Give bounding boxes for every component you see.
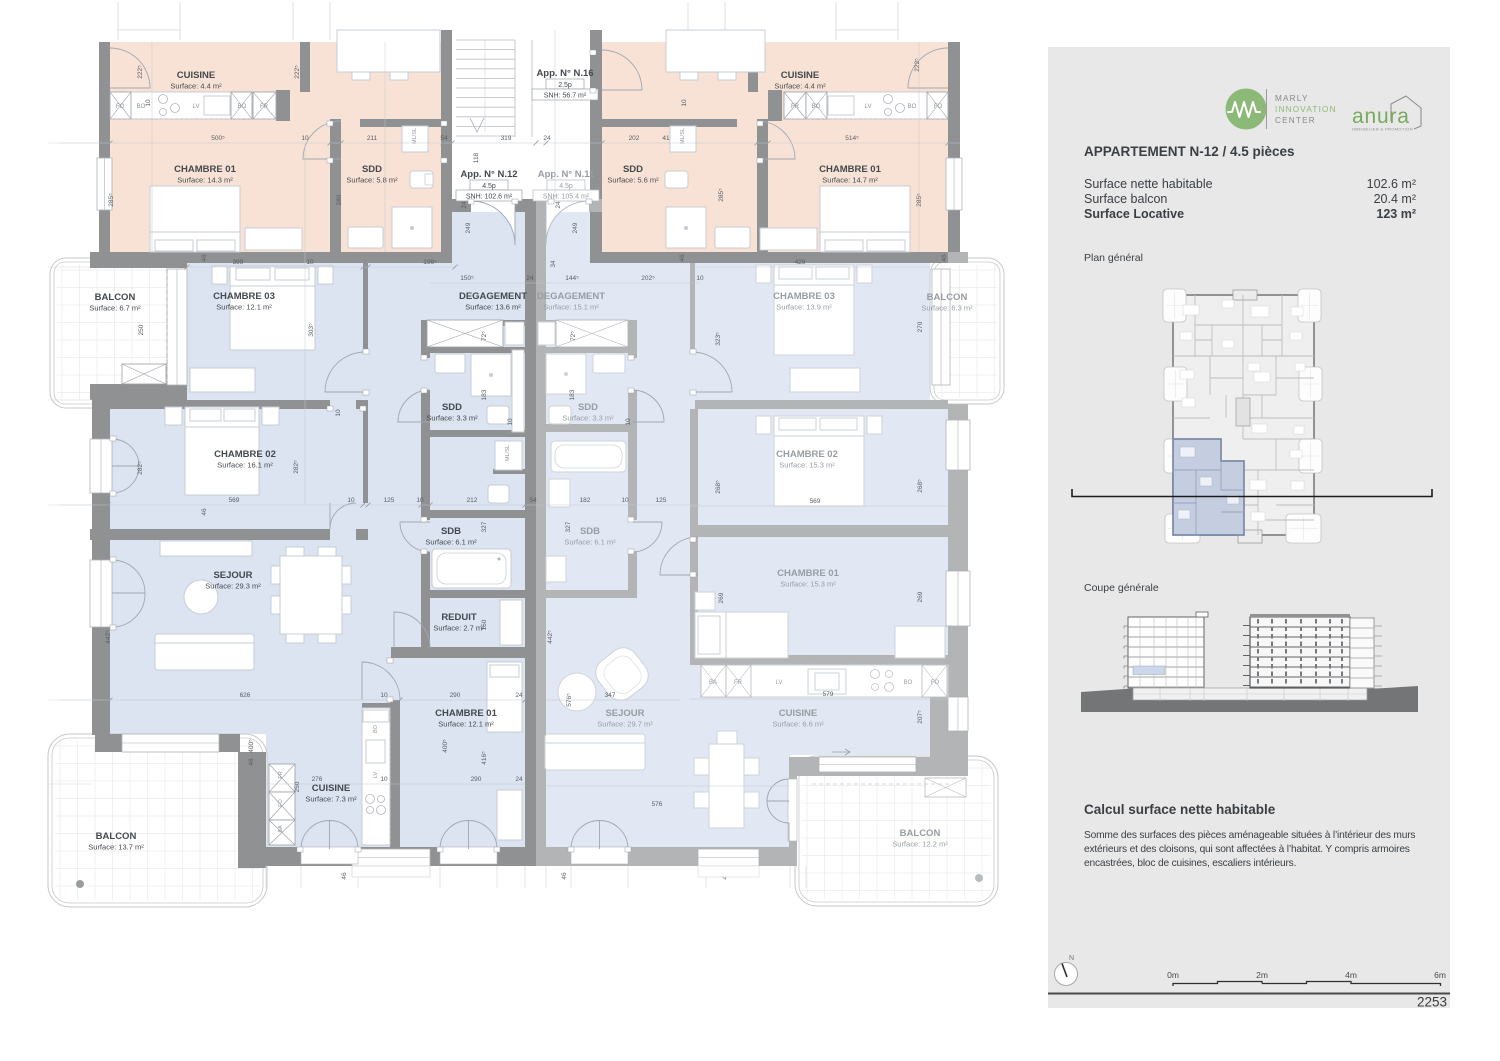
svg-text:400⁵: 400⁵ bbox=[248, 739, 255, 753]
svg-text:46: 46 bbox=[341, 872, 348, 880]
svg-text:Surface: 29.3 m²: Surface: 29.3 m² bbox=[205, 582, 261, 591]
svg-text:102.6 m²: 102.6 m² bbox=[1367, 177, 1416, 191]
svg-text:222⁵: 222⁵ bbox=[137, 65, 144, 79]
svg-text:207⁵: 207⁵ bbox=[917, 710, 924, 724]
svg-text:10: 10 bbox=[380, 776, 388, 783]
svg-text:Surface: 6.3 m²: Surface: 6.3 m² bbox=[921, 304, 973, 313]
svg-text:DEGAGEMENT: DEGAGEMENT bbox=[537, 291, 605, 302]
svg-text:Coupe générale: Coupe générale bbox=[1084, 582, 1159, 594]
svg-text:125: 125 bbox=[384, 497, 395, 504]
svg-text:Surface: 2.7 m²: Surface: 2.7 m² bbox=[433, 624, 485, 633]
svg-text:Surface: 6.1 m²: Surface: 6.1 m² bbox=[564, 538, 616, 547]
svg-text:CHAMBRE 01: CHAMBRE 01 bbox=[435, 708, 497, 719]
svg-text:IMMOBILIER & PROMOTION: IMMOBILIER & PROMOTION bbox=[1352, 127, 1413, 132]
svg-text:LV: LV bbox=[776, 680, 783, 686]
svg-text:CHAMBRE 01: CHAMBRE 01 bbox=[174, 164, 236, 175]
svg-text:2m: 2m bbox=[1256, 970, 1268, 980]
svg-text:268⁵: 268⁵ bbox=[917, 479, 924, 493]
svg-text:46: 46 bbox=[679, 254, 686, 262]
svg-text:BO: BO bbox=[238, 104, 247, 110]
svg-text:276: 276 bbox=[312, 776, 323, 783]
svg-text:Surface: 7.3 m²: Surface: 7.3 m² bbox=[305, 795, 357, 804]
svg-text:Surface: 15.1 m²: Surface: 15.1 m² bbox=[543, 303, 599, 312]
svg-text:270: 270 bbox=[917, 321, 924, 332]
svg-text:319: 319 bbox=[501, 135, 512, 142]
svg-text:Surface: 6.7 m²: Surface: 6.7 m² bbox=[89, 304, 141, 313]
svg-text:429: 429 bbox=[795, 259, 806, 266]
svg-text:20.4 m²: 20.4 m² bbox=[1374, 192, 1416, 206]
svg-text:500⁵: 500⁵ bbox=[211, 135, 225, 142]
svg-text:FO: FO bbox=[278, 798, 284, 806]
svg-text:FR: FR bbox=[734, 680, 743, 686]
svg-text:INNOVATION: INNOVATION bbox=[1275, 105, 1337, 114]
svg-text:46: 46 bbox=[248, 758, 255, 766]
svg-text:442⁵: 442⁵ bbox=[547, 630, 554, 644]
svg-text:BALCON: BALCON bbox=[95, 292, 136, 303]
svg-text:Surface: 5.8 m²: Surface: 5.8 m² bbox=[346, 176, 398, 185]
svg-text:LV: LV bbox=[193, 104, 200, 110]
svg-text:CHAMBRE 01: CHAMBRE 01 bbox=[819, 164, 881, 175]
svg-text:CHAMBRE 01: CHAMBRE 01 bbox=[777, 568, 839, 579]
svg-text:212: 212 bbox=[467, 497, 478, 504]
svg-text:Surface: 3.3 m²: Surface: 3.3 m² bbox=[562, 414, 614, 423]
svg-text:10: 10 bbox=[306, 259, 314, 266]
svg-text:CHAMBRE 02: CHAMBRE 02 bbox=[214, 449, 276, 460]
svg-text:Surface: 6.1 m²: Surface: 6.1 m² bbox=[425, 538, 477, 547]
svg-text:182: 182 bbox=[580, 497, 591, 504]
svg-text:10: 10 bbox=[335, 409, 342, 417]
svg-text:SDD: SDD bbox=[623, 164, 643, 175]
svg-text:24: 24 bbox=[515, 776, 523, 783]
svg-text:285⁵: 285⁵ bbox=[916, 193, 923, 207]
svg-text:Plan général: Plan général bbox=[1084, 252, 1143, 264]
svg-text:46: 46 bbox=[561, 872, 568, 880]
svg-text:DEGAGEMENT: DEGAGEMENT bbox=[459, 291, 527, 302]
svg-text:399: 399 bbox=[233, 259, 244, 266]
svg-text:202: 202 bbox=[629, 135, 640, 142]
svg-text:24: 24 bbox=[526, 275, 534, 282]
svg-text:BALCON: BALCON bbox=[900, 828, 941, 839]
svg-text:Surface: 16.1 m²: Surface: 16.1 m² bbox=[217, 461, 273, 470]
svg-text:CENTER: CENTER bbox=[1275, 116, 1316, 125]
svg-text:Surface: 13.7 m²: Surface: 13.7 m² bbox=[88, 843, 144, 852]
svg-text:CHAMBRE 02: CHAMBRE 02 bbox=[776, 449, 838, 460]
svg-text:FO: FO bbox=[116, 104, 125, 110]
svg-text:Surface: 13.6 m²: Surface: 13.6 m² bbox=[465, 303, 521, 312]
svg-text:285⁵: 285⁵ bbox=[718, 188, 725, 202]
svg-text:CHAMBRE 03: CHAMBRE 03 bbox=[213, 291, 275, 302]
svg-text:10: 10 bbox=[301, 135, 309, 142]
svg-text:ML/SL: ML/SL bbox=[680, 128, 686, 144]
svg-text:24: 24 bbox=[543, 135, 551, 142]
svg-text:App. N° N.16: App. N° N.16 bbox=[536, 68, 593, 79]
svg-text:626: 626 bbox=[240, 692, 251, 699]
svg-text:SDB: SDB bbox=[580, 526, 600, 537]
svg-text:4.5p: 4.5p bbox=[559, 183, 573, 190]
svg-text:268⁵: 268⁵ bbox=[715, 480, 722, 494]
svg-text:183: 183 bbox=[481, 389, 488, 400]
svg-text:LV: LV bbox=[373, 772, 379, 779]
svg-text:FR: FR bbox=[278, 771, 284, 778]
svg-text:72⁵: 72⁵ bbox=[481, 331, 488, 341]
svg-text:514⁵: 514⁵ bbox=[845, 135, 859, 142]
svg-text:10: 10 bbox=[625, 418, 632, 426]
svg-text:anura: anura bbox=[1352, 105, 1410, 128]
svg-text:211: 211 bbox=[367, 135, 378, 142]
svg-text:APPARTEMENT N-12 / 4.5 pièces: APPARTEMENT N-12 / 4.5 pièces bbox=[1084, 144, 1295, 159]
svg-text:SDB: SDB bbox=[441, 526, 461, 537]
svg-text:Surface: 4.4 m²: Surface: 4.4 m² bbox=[170, 82, 222, 91]
svg-text:BO: BO bbox=[812, 104, 821, 110]
svg-text:282⁵: 282⁵ bbox=[293, 460, 300, 474]
svg-text:Surface: 15.3 m²: Surface: 15.3 m² bbox=[779, 461, 835, 470]
svg-text:encastrées, bloc de cuisines,: encastrées, bloc de cuisines, escaliers … bbox=[1084, 858, 1296, 869]
svg-text:250: 250 bbox=[294, 781, 301, 792]
svg-text:BO: BO bbox=[904, 680, 913, 686]
svg-text:CUISINE: CUISINE bbox=[781, 70, 820, 81]
svg-text:123 m²: 123 m² bbox=[1376, 207, 1416, 221]
svg-text:LV: LV bbox=[865, 104, 872, 110]
svg-text:Surface: 3.3 m²: Surface: 3.3 m² bbox=[426, 414, 478, 423]
svg-text:72⁵: 72⁵ bbox=[570, 331, 577, 341]
svg-text:125: 125 bbox=[656, 497, 667, 504]
svg-text:Calcul surface nette habitable: Calcul surface nette habitable bbox=[1084, 802, 1276, 817]
svg-text:202⁵: 202⁵ bbox=[641, 275, 655, 282]
svg-text:249: 249 bbox=[572, 222, 579, 233]
svg-text:Surface Locative: Surface Locative bbox=[1084, 207, 1184, 221]
svg-text:10: 10 bbox=[621, 497, 629, 504]
svg-text:Surface: 14.3 m²: Surface: 14.3 m² bbox=[177, 176, 233, 185]
svg-text:App. N° N.11: App. N° N.11 bbox=[538, 169, 595, 180]
svg-text:118: 118 bbox=[473, 152, 480, 163]
svg-text:400⁵: 400⁵ bbox=[442, 739, 449, 753]
svg-text:SDD: SDD bbox=[442, 402, 462, 413]
svg-text:34: 34 bbox=[550, 260, 557, 268]
svg-text:249: 249 bbox=[465, 222, 472, 233]
svg-text:290: 290 bbox=[450, 692, 461, 699]
svg-text:REDUIT: REDUIT bbox=[441, 612, 477, 623]
svg-text:323⁵: 323⁵ bbox=[715, 332, 722, 346]
svg-text:Surface nette habitable: Surface nette habitable bbox=[1084, 177, 1213, 191]
svg-text:Surface: 12.1 m²: Surface: 12.1 m² bbox=[438, 720, 494, 729]
svg-text:10: 10 bbox=[507, 418, 514, 426]
svg-text:MARLY: MARLY bbox=[1275, 94, 1309, 103]
svg-text:2253: 2253 bbox=[1417, 995, 1447, 1010]
svg-text:SDD: SDD bbox=[362, 164, 382, 175]
svg-text:N: N bbox=[1069, 955, 1074, 962]
svg-text:269: 269 bbox=[718, 592, 725, 603]
svg-text:10: 10 bbox=[145, 99, 152, 107]
svg-text:280: 280 bbox=[336, 194, 343, 205]
svg-text:CUISINE: CUISINE bbox=[779, 708, 818, 719]
svg-text:269: 269 bbox=[917, 591, 924, 602]
svg-text:569: 569 bbox=[229, 497, 240, 504]
svg-text:CUISINE: CUISINE bbox=[177, 70, 216, 81]
svg-text:Surface: 14.7 m²: Surface: 14.7 m² bbox=[822, 176, 878, 185]
svg-text:250: 250 bbox=[138, 324, 145, 335]
svg-text:282⁵: 282⁵ bbox=[137, 461, 144, 475]
svg-text:196⁵: 196⁵ bbox=[423, 259, 437, 266]
svg-text:54: 54 bbox=[529, 497, 537, 504]
svg-text:347: 347 bbox=[605, 692, 616, 699]
svg-text:BALCON: BALCON bbox=[927, 292, 968, 303]
svg-text:327: 327 bbox=[481, 521, 488, 532]
svg-text:CUISINE: CUISINE bbox=[312, 783, 351, 794]
svg-text:579: 579 bbox=[823, 691, 834, 698]
svg-text:BO: BO bbox=[908, 104, 917, 110]
svg-text:Surface: 12.1 m²: Surface: 12.1 m² bbox=[216, 303, 272, 312]
svg-text:BALCON: BALCON bbox=[96, 831, 137, 842]
svg-text:569: 569 bbox=[810, 498, 821, 505]
svg-text:4m: 4m bbox=[1345, 970, 1357, 980]
svg-text:App. N° N.12: App. N° N.12 bbox=[460, 169, 517, 180]
svg-text:46: 46 bbox=[201, 254, 208, 262]
svg-text:Surface: 5.6 m²: Surface: 5.6 m² bbox=[607, 176, 659, 185]
svg-text:10: 10 bbox=[347, 497, 355, 504]
svg-text:Surface balcon: Surface balcon bbox=[1084, 192, 1167, 206]
svg-text:FR: FR bbox=[791, 104, 800, 110]
svg-text:285⁵: 285⁵ bbox=[108, 193, 115, 207]
svg-text:24: 24 bbox=[515, 692, 523, 699]
svg-text:extérieurs et des cloisons, qu: extérieurs et des cloisons, qui sont aff… bbox=[1084, 844, 1410, 855]
svg-text:442⁵: 442⁵ bbox=[105, 630, 112, 644]
svg-text:ML/SL: ML/SL bbox=[505, 445, 511, 461]
svg-text:Surface: 12.2 m²: Surface: 12.2 m² bbox=[892, 840, 948, 849]
svg-text:24: 24 bbox=[461, 201, 468, 209]
svg-text:SDD: SDD bbox=[578, 402, 598, 413]
svg-text:FO: FO bbox=[934, 104, 943, 110]
svg-text:BO: BO bbox=[373, 724, 379, 733]
svg-text:Surface: 29.7 m²: Surface: 29.7 m² bbox=[597, 720, 653, 729]
svg-text:0m: 0m bbox=[1167, 970, 1179, 980]
svg-text:54: 54 bbox=[440, 135, 448, 142]
svg-text:FR: FR bbox=[260, 104, 269, 110]
svg-text:Surface: 13.9 m²: Surface: 13.9 m² bbox=[776, 303, 832, 312]
svg-text:Surface: 6.6 m²: Surface: 6.6 m² bbox=[772, 720, 824, 729]
svg-text:2.5p: 2.5p bbox=[558, 82, 572, 89]
svg-text:576⁵: 576⁵ bbox=[566, 693, 573, 707]
svg-text:Surface: 15.3 m²: Surface: 15.3 m² bbox=[780, 580, 836, 589]
svg-text:SEJOUR: SEJOUR bbox=[605, 708, 644, 719]
svg-text:144⁵: 144⁵ bbox=[565, 275, 579, 282]
svg-text:24: 24 bbox=[555, 201, 562, 209]
svg-text:303⁵: 303⁵ bbox=[308, 323, 315, 337]
svg-text:290: 290 bbox=[471, 776, 482, 783]
svg-text:SNH: 56.7 m²: SNH: 56.7 m² bbox=[544, 93, 587, 100]
svg-text:46: 46 bbox=[941, 254, 948, 262]
svg-text:416⁵: 416⁵ bbox=[481, 751, 488, 765]
svg-text:222⁵: 222⁵ bbox=[914, 58, 921, 72]
svg-text:CHAMBRE 03: CHAMBRE 03 bbox=[773, 291, 835, 302]
svg-text:46: 46 bbox=[201, 508, 208, 516]
svg-text:SEJOUR: SEJOUR bbox=[213, 570, 252, 581]
svg-text:10: 10 bbox=[696, 275, 704, 282]
svg-text:327: 327 bbox=[565, 521, 572, 532]
svg-text:183: 183 bbox=[569, 389, 576, 400]
svg-text:Somme des surfaces des pièces: Somme des surfaces des pièces aménageabl… bbox=[1084, 830, 1415, 841]
svg-text:150: 150 bbox=[481, 619, 488, 630]
svg-text:BA: BA bbox=[709, 680, 717, 686]
svg-text:Surface: 4.4 m²: Surface: 4.4 m² bbox=[774, 82, 826, 91]
svg-text:222⁵: 222⁵ bbox=[294, 65, 301, 79]
svg-text:41: 41 bbox=[662, 135, 670, 142]
svg-text:6m: 6m bbox=[1434, 970, 1446, 980]
svg-text:4.5p: 4.5p bbox=[482, 183, 496, 190]
svg-text:576: 576 bbox=[652, 801, 663, 808]
svg-text:10: 10 bbox=[681, 99, 688, 107]
svg-text:BA: BA bbox=[278, 825, 284, 833]
svg-text:FO: FO bbox=[931, 680, 940, 686]
svg-text:150⁵: 150⁵ bbox=[460, 275, 474, 282]
svg-text:ML/SL: ML/SL bbox=[412, 128, 418, 144]
